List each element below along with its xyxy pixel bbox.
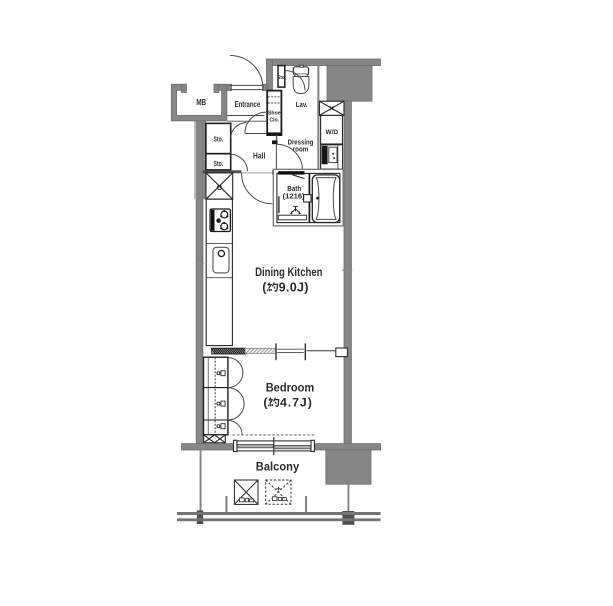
svg-text:Sto.: Sto.	[277, 75, 286, 81]
svg-text:Bedroom: Bedroom	[266, 380, 315, 394]
svg-text:Clo.: Clo.	[270, 118, 280, 124]
svg-text:Hall: Hall	[253, 152, 265, 161]
svg-text:W/D: W/D	[326, 129, 339, 136]
svg-text:room: room	[293, 146, 309, 153]
svg-text:Entrance: Entrance	[235, 100, 261, 109]
svg-text:9.0J): 9.0J)	[279, 280, 309, 294]
svg-text:Bath: Bath	[287, 186, 301, 193]
svg-text:Sto.: Sto.	[214, 137, 224, 144]
svg-text:MB: MB	[196, 98, 206, 107]
svg-text:Shoe: Shoe	[268, 111, 281, 117]
svg-text:Dining Kitchen: Dining Kitchen	[255, 265, 322, 279]
svg-text:Lav.: Lav.	[296, 100, 308, 109]
svg-text:(1216): (1216)	[283, 193, 305, 200]
svg-text:4.7J): 4.7J)	[280, 396, 313, 410]
svg-text:Sto.: Sto.	[214, 161, 224, 168]
svg-text:Balcony: Balcony	[256, 459, 300, 473]
